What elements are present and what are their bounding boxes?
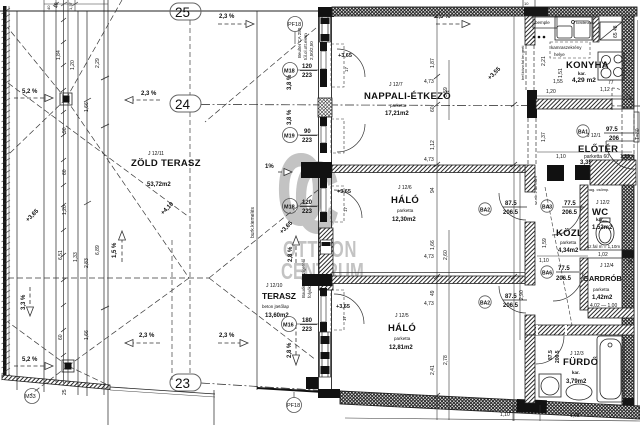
svg-text:5,2 %: 5,2 % (22, 357, 38, 363)
svg-text:+3,65: +3,65 (338, 53, 352, 59)
svg-text:1,20: 1,20 (70, 60, 76, 70)
svg-text:beton jtetőlap: beton jtetőlap (262, 304, 290, 309)
svg-text:90: 90 (304, 129, 311, 135)
svg-text:PF18: PF18 (287, 403, 300, 409)
svg-text:1,66: 1,66 (84, 102, 90, 112)
svg-text:2,3 %: 2,3 % (139, 333, 155, 339)
svg-text:2,3 %: 2,3 % (219, 333, 235, 339)
svg-text:1,66: 1,66 (430, 240, 436, 250)
svg-text:4,73: 4,73 (424, 254, 434, 260)
svg-text:10: 10 (524, 1, 529, 6)
svg-text:1,66: 1,66 (84, 330, 90, 340)
svg-text:1,51: 1,51 (558, 68, 564, 78)
svg-text:206.5: 206.5 (556, 276, 572, 282)
svg-text:HÁLÓ: HÁLÓ (388, 322, 416, 334)
svg-text:GARDRÓB: GARDRÓB (583, 274, 622, 283)
svg-text:206.5: 206.5 (555, 350, 561, 363)
svg-text:1,37: 1,37 (68, 1, 73, 10)
svg-text:60: 60 (58, 334, 64, 340)
svg-text:PF18: PF18 (288, 22, 301, 28)
svg-text:TERASZ: TERASZ (262, 291, 296, 301)
svg-text:KÖZL: KÖZL (556, 228, 583, 239)
svg-text:12,30m2: 12,30m2 (392, 217, 416, 223)
svg-text:2,50/2,50: 2,50/2,50 (309, 41, 314, 60)
svg-text:1,84: 1,84 (56, 50, 62, 60)
svg-text:parketta: parketta (593, 287, 610, 292)
svg-text:Beulter CA 250: Beulter CA 250 (297, 27, 302, 58)
svg-text:2,83: 2,83 (84, 258, 90, 268)
svg-text:60: 60 (430, 106, 436, 112)
svg-text:1,78: 1,78 (626, 370, 632, 380)
svg-text:M18: M18 (284, 69, 295, 75)
svg-text:1,02: 1,02 (598, 252, 608, 258)
svg-text:4,73: 4,73 (424, 301, 434, 307)
svg-text:1,02: 1,02 (570, 413, 580, 419)
svg-text:parketta: parketta (397, 208, 414, 213)
svg-text:bef.közv.fal ím gerti: bef.közv.fal ím gerti (520, 46, 525, 80)
svg-text:223: 223 (302, 138, 313, 144)
svg-text:24: 24 (175, 97, 191, 112)
svg-text:2,90: 2,90 (519, 290, 525, 300)
svg-text:parketta 60: parketta 60 (584, 154, 609, 160)
svg-text:T=80: T=80 (635, 128, 640, 140)
svg-text:25: 25 (627, 260, 633, 266)
svg-text:77.5: 77.5 (558, 266, 570, 272)
svg-text:94: 94 (430, 187, 436, 193)
svg-text:+3,65: +3,65 (337, 189, 351, 195)
svg-text:kar.: kar. (578, 71, 586, 76)
svg-text:17,21m2: 17,21m2 (385, 111, 409, 117)
svg-text:206.5: 206.5 (562, 210, 578, 216)
svg-text:87.5: 87.5 (505, 201, 517, 207)
svg-text:1,33: 1,33 (73, 252, 79, 262)
svg-text:helye: helye (554, 52, 565, 57)
svg-text:2,8 %: 2,8 % (287, 342, 293, 358)
svg-text:1,59: 1,59 (542, 238, 548, 248)
svg-text:17: 17 (342, 315, 347, 321)
svg-text:kamraszekrény: kamraszekrény (551, 45, 582, 50)
svg-text:J 12/5: J 12/5 (395, 313, 409, 319)
svg-text:1,30: 1,30 (620, 154, 630, 160)
svg-text:parketta: parketta (560, 240, 577, 245)
svg-text:77: 77 (608, 80, 614, 86)
svg-text:M18: M18 (284, 205, 295, 211)
svg-text:J 12/1: J 12/1 (587, 133, 601, 139)
svg-text:KONYHA: KONYHA (566, 60, 609, 71)
svg-text:25: 25 (175, 5, 190, 20)
svg-text:J 12/6: J 12/6 (398, 185, 412, 191)
svg-text:223: 223 (302, 327, 313, 333)
svg-text:97.5: 97.5 (606, 127, 618, 133)
svg-text:77.5: 77.5 (564, 201, 576, 207)
svg-text:60: 60 (62, 169, 68, 175)
svg-text:223: 223 (302, 73, 313, 79)
svg-text:2,3 %: 2,3 % (219, 14, 235, 20)
svg-text:3,59: 3,59 (443, 87, 449, 97)
svg-text:1,55: 1,55 (553, 79, 563, 85)
svg-text:tűl.ol.ott.elem: tűl.ol.ott.elem (303, 33, 308, 60)
svg-text:3,8 %: 3,8 % (287, 74, 293, 90)
svg-text:parketta: parketta (390, 103, 407, 108)
svg-text:13,60m2: 13,60m2 (265, 313, 289, 319)
svg-text:5,2 %: 5,2 % (22, 89, 38, 95)
svg-text:bemple: bemple (535, 20, 550, 25)
svg-text:53,72m2: 53,72m2 (147, 182, 171, 188)
svg-text:4,73: 4,73 (424, 157, 434, 163)
svg-text:BA3: BA3 (542, 205, 552, 211)
svg-text:2,21: 2,21 (541, 56, 547, 66)
svg-text:223: 223 (302, 209, 313, 215)
svg-text:J 12/7: J 12/7 (389, 82, 403, 88)
svg-text:2,41: 2,41 (430, 365, 436, 375)
svg-text:BA2: BA2 (480, 208, 490, 214)
svg-text:2,3 %: 2,3 % (141, 91, 157, 97)
svg-text:1,5 %: 1,5 % (112, 242, 118, 258)
svg-text:40: 40 (46, 5, 51, 10)
svg-text:1,42m2: 1,42m2 (592, 295, 613, 301)
svg-text:+3,65: +3,65 (336, 304, 350, 310)
svg-text:49: 49 (430, 290, 436, 296)
svg-text:parketta: parketta (394, 336, 411, 341)
svg-text:J 12/10: J 12/10 (266, 283, 283, 289)
svg-text:3,3 %: 3,3 % (21, 294, 27, 310)
svg-text:12,81m2: 12,81m2 (389, 345, 413, 351)
svg-text:1,10: 1,10 (539, 258, 549, 264)
svg-text:120: 120 (302, 200, 313, 206)
svg-text:1,37: 1,37 (541, 132, 547, 142)
svg-text:1,20: 1,20 (546, 89, 556, 95)
svg-text:M19: M19 (284, 134, 295, 140)
svg-text:4,34m2: 4,34m2 (558, 248, 579, 254)
svg-text:ZÖLD TERASZ: ZÖLD TERASZ (131, 158, 201, 169)
svg-text:J 12/2: J 12/2 (596, 200, 610, 206)
svg-text:kar.: kar. (572, 370, 580, 375)
svg-text:1,10: 1,10 (556, 154, 566, 160)
svg-text:1,20: 1,20 (62, 205, 68, 215)
svg-text:sz.fal m = 1,10m: sz.fal m = 1,10m (587, 244, 620, 249)
svg-text:23: 23 (175, 376, 190, 391)
svg-text:120: 120 (302, 64, 313, 70)
svg-text:1%: 1% (265, 164, 274, 170)
svg-text:2,8 %: 2,8 % (288, 246, 294, 262)
svg-text:2,29: 2,29 (95, 58, 101, 68)
svg-text:1,12: 1,12 (430, 140, 436, 150)
svg-text:6,89: 6,89 (95, 245, 101, 255)
svg-text:1,10: 1,10 (500, 412, 510, 418)
svg-text:180: 180 (302, 318, 313, 324)
svg-text:BA2: BA2 (480, 301, 490, 307)
svg-text:burk.kiemelés: burk.kiemelés (250, 207, 256, 238)
svg-text:87.5: 87.5 (505, 294, 517, 300)
svg-text:BA6: BA6 (542, 271, 552, 277)
svg-text:NAPPALI-ÉTKEZŐ: NAPPALI-ÉTKEZŐ (364, 90, 451, 102)
svg-text:1,87: 1,87 (430, 58, 436, 68)
svg-text:3,8 %: 3,8 % (287, 109, 293, 125)
svg-text:HÁLÓ: HÁLÓ (391, 194, 419, 206)
svg-text:1,12: 1,12 (600, 87, 610, 93)
svg-text:17: 17 (344, 66, 349, 72)
svg-text:87.5: 87.5 (548, 350, 554, 360)
svg-text:M33: M33 (25, 394, 36, 400)
svg-text:sz.elb 2 db csim: sz.elb 2 db csim (533, 176, 538, 205)
svg-text:2,60: 2,60 (443, 250, 449, 260)
svg-text:FÜRDŐ: FÜRDŐ (563, 356, 598, 368)
svg-text:17: 17 (343, 206, 348, 212)
svg-text:J 12/4: J 12/4 (600, 263, 614, 269)
svg-text:90: 90 (62, 127, 68, 133)
svg-text:4,29 m2: 4,29 m2 (572, 77, 596, 84)
svg-text:25: 25 (62, 389, 68, 395)
svg-text:4,73: 4,73 (424, 79, 434, 85)
svg-text:J 12/11: J 12/11 (148, 151, 164, 157)
svg-text:2,78: 2,78 (443, 355, 449, 365)
svg-text:M16: M16 (283, 323, 294, 329)
svg-text:65 48: 65 48 (613, 25, 619, 38)
